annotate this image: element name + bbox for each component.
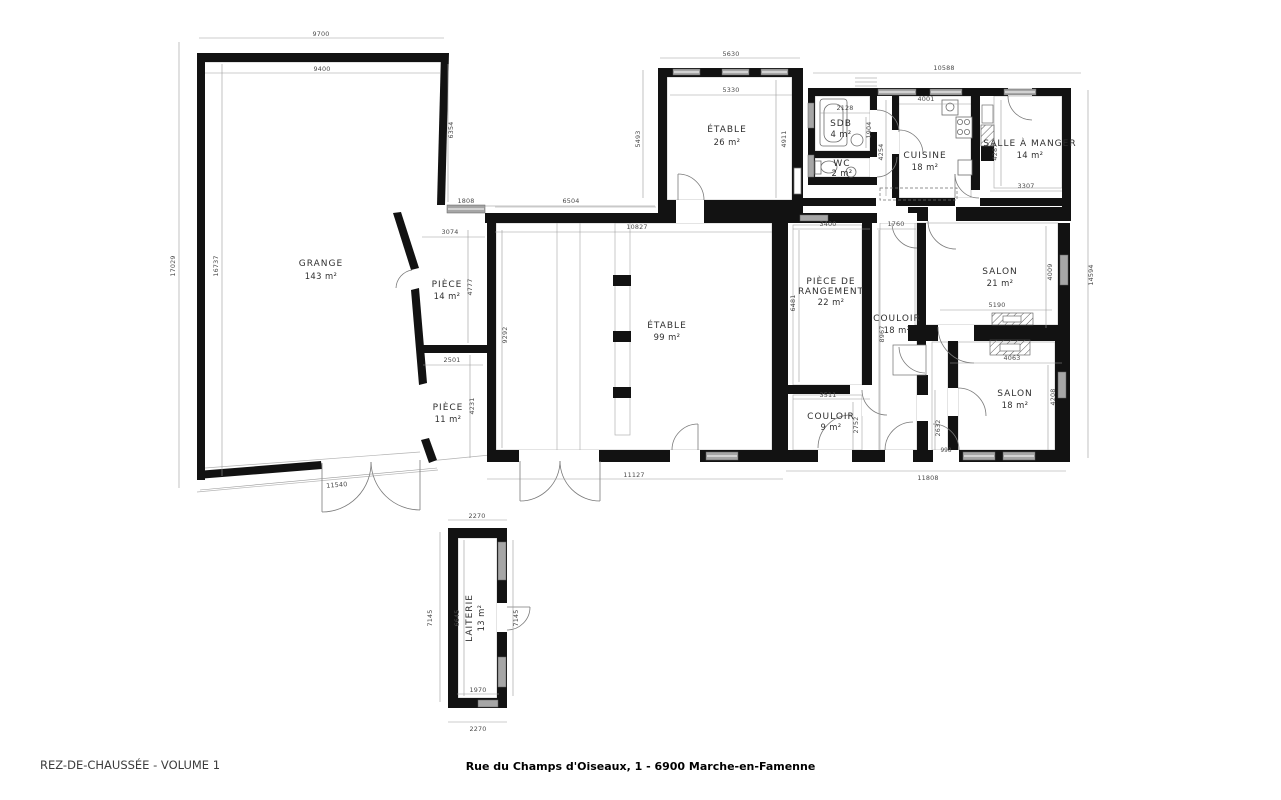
dim-label: 10827: [626, 223, 647, 231]
room-label-piece11: PIÈCE: [433, 401, 464, 413]
dim-label: 2270: [468, 512, 485, 520]
room-label-etable26: ÉTABLE: [707, 123, 747, 135]
dim-label: 6481: [789, 294, 797, 311]
room-area-salon21: 21 m²: [987, 278, 1014, 288]
dim-label: 4254: [877, 143, 885, 160]
dim-label: 11540: [326, 480, 348, 490]
dim-label: 5190: [988, 301, 1005, 309]
address: Rue du Champs d'Oiseaux, 1 - 6900 Marche…: [0, 760, 1281, 773]
dim-label: 14594: [1087, 264, 1095, 285]
dim-label: 5493: [634, 130, 642, 147]
dim-label: 6354: [447, 121, 455, 138]
room-area-couloir18: 18 m²: [884, 325, 911, 335]
room-label-piece14: PIÈCE: [432, 278, 463, 290]
dim-label: 5630: [722, 50, 739, 58]
dim-label: 4001: [917, 95, 934, 103]
dim-label: 4777: [466, 278, 474, 295]
room-area-laiterie: 13 m²: [476, 605, 486, 632]
room-label-laiterie: LAITERIE: [465, 594, 475, 642]
room-label-couloir18: COULOIR: [873, 314, 921, 324]
dim-label: 998: [940, 448, 951, 454]
dim-label: 1808: [457, 197, 474, 205]
sink-icon: [851, 134, 863, 146]
dim-label: 4911: [780, 130, 788, 147]
room-label-rangement2: RANGEMENT: [798, 287, 864, 297]
room-area-etable99: 99 m²: [654, 332, 681, 342]
room-label-salle-a-manger: SALLE À MANGER: [983, 137, 1076, 149]
dim-label: 3074: [441, 228, 458, 236]
floor-plan-page: 9700 9400 17029 16737 6354 1808 3074 477…: [0, 0, 1281, 800]
room-area-piece14: 14 m²: [434, 291, 461, 301]
room-label-grange: GRANGE: [299, 259, 343, 269]
dim-label: 6645: [453, 609, 461, 626]
room-area-couloir9: 9 m²: [820, 422, 841, 432]
room-labels: GRANGE 143 m² ÉTABLE 26 m² SDB 4 m² WC 2…: [299, 119, 1077, 642]
room-label-couloir9: COULOIR: [807, 412, 855, 422]
room-area-grange: 143 m²: [305, 271, 338, 281]
floor-plan-svg: 9700 9400 17029 16737 6354 1808 3074 477…: [0, 0, 1281, 800]
room-label-etable99: ÉTABLE: [647, 319, 687, 331]
room-label-salon18: SALON: [997, 389, 1033, 399]
dim-label: 2128: [836, 104, 853, 112]
dim-label: 11808: [917, 474, 938, 482]
dim-label: 1760: [887, 220, 904, 228]
dim-label: 9292: [501, 326, 509, 343]
room-area-wc: 2 m²: [831, 168, 852, 178]
dim-label: 4063: [1003, 354, 1020, 362]
dim-label: 3307: [1017, 182, 1034, 190]
room-area-piece11: 11 m²: [435, 414, 462, 424]
dim-label: 2501: [443, 356, 460, 364]
kitchen-sink-icon: [942, 100, 958, 115]
dim-label: 3511: [819, 391, 836, 399]
cabinet-icon: [958, 160, 972, 175]
fixtures: [613, 99, 1033, 398]
dim-label: 7145: [512, 609, 520, 626]
dim-label: 1904: [865, 121, 873, 138]
dim-label: 11127: [623, 471, 644, 479]
dim-label: 3400: [819, 220, 836, 228]
dim-label: 9700: [312, 30, 329, 38]
stove-icon: [956, 117, 972, 138]
dim-label: 4009: [1046, 263, 1054, 280]
room-area-cuisine: 18 m²: [912, 162, 939, 172]
dim-label: 2632: [934, 419, 942, 436]
dim-label: 16737: [212, 255, 220, 276]
dim-label: 1970: [469, 686, 486, 694]
room-area-sdb: 4 m²: [830, 129, 851, 139]
dim-label: 4208: [1049, 388, 1057, 405]
dim-label: 4231: [468, 397, 476, 414]
dim-label: 2270: [469, 725, 486, 733]
room-label-salon21: SALON: [982, 267, 1018, 277]
dim-label: 6504: [562, 197, 579, 205]
room-area-rangement: 22 m²: [818, 297, 845, 307]
dim-label: 17029: [169, 255, 177, 276]
dim-label: 5330: [722, 86, 739, 94]
dim-label: 9400: [313, 65, 330, 73]
room-area-salle-a-manger: 14 m²: [1017, 150, 1044, 160]
room-area-salon18: 18 m²: [1002, 400, 1029, 410]
room-label-sdb: SDB: [830, 119, 852, 129]
room-area-etable26: 26 m²: [714, 137, 741, 147]
dim-label: 7145: [426, 609, 434, 626]
pillars: [613, 275, 631, 398]
room-label-rangement: PIÈCE DE: [806, 275, 855, 287]
room-label-cuisine: CUISINE: [903, 151, 946, 161]
dim-label: 10588: [933, 64, 954, 72]
